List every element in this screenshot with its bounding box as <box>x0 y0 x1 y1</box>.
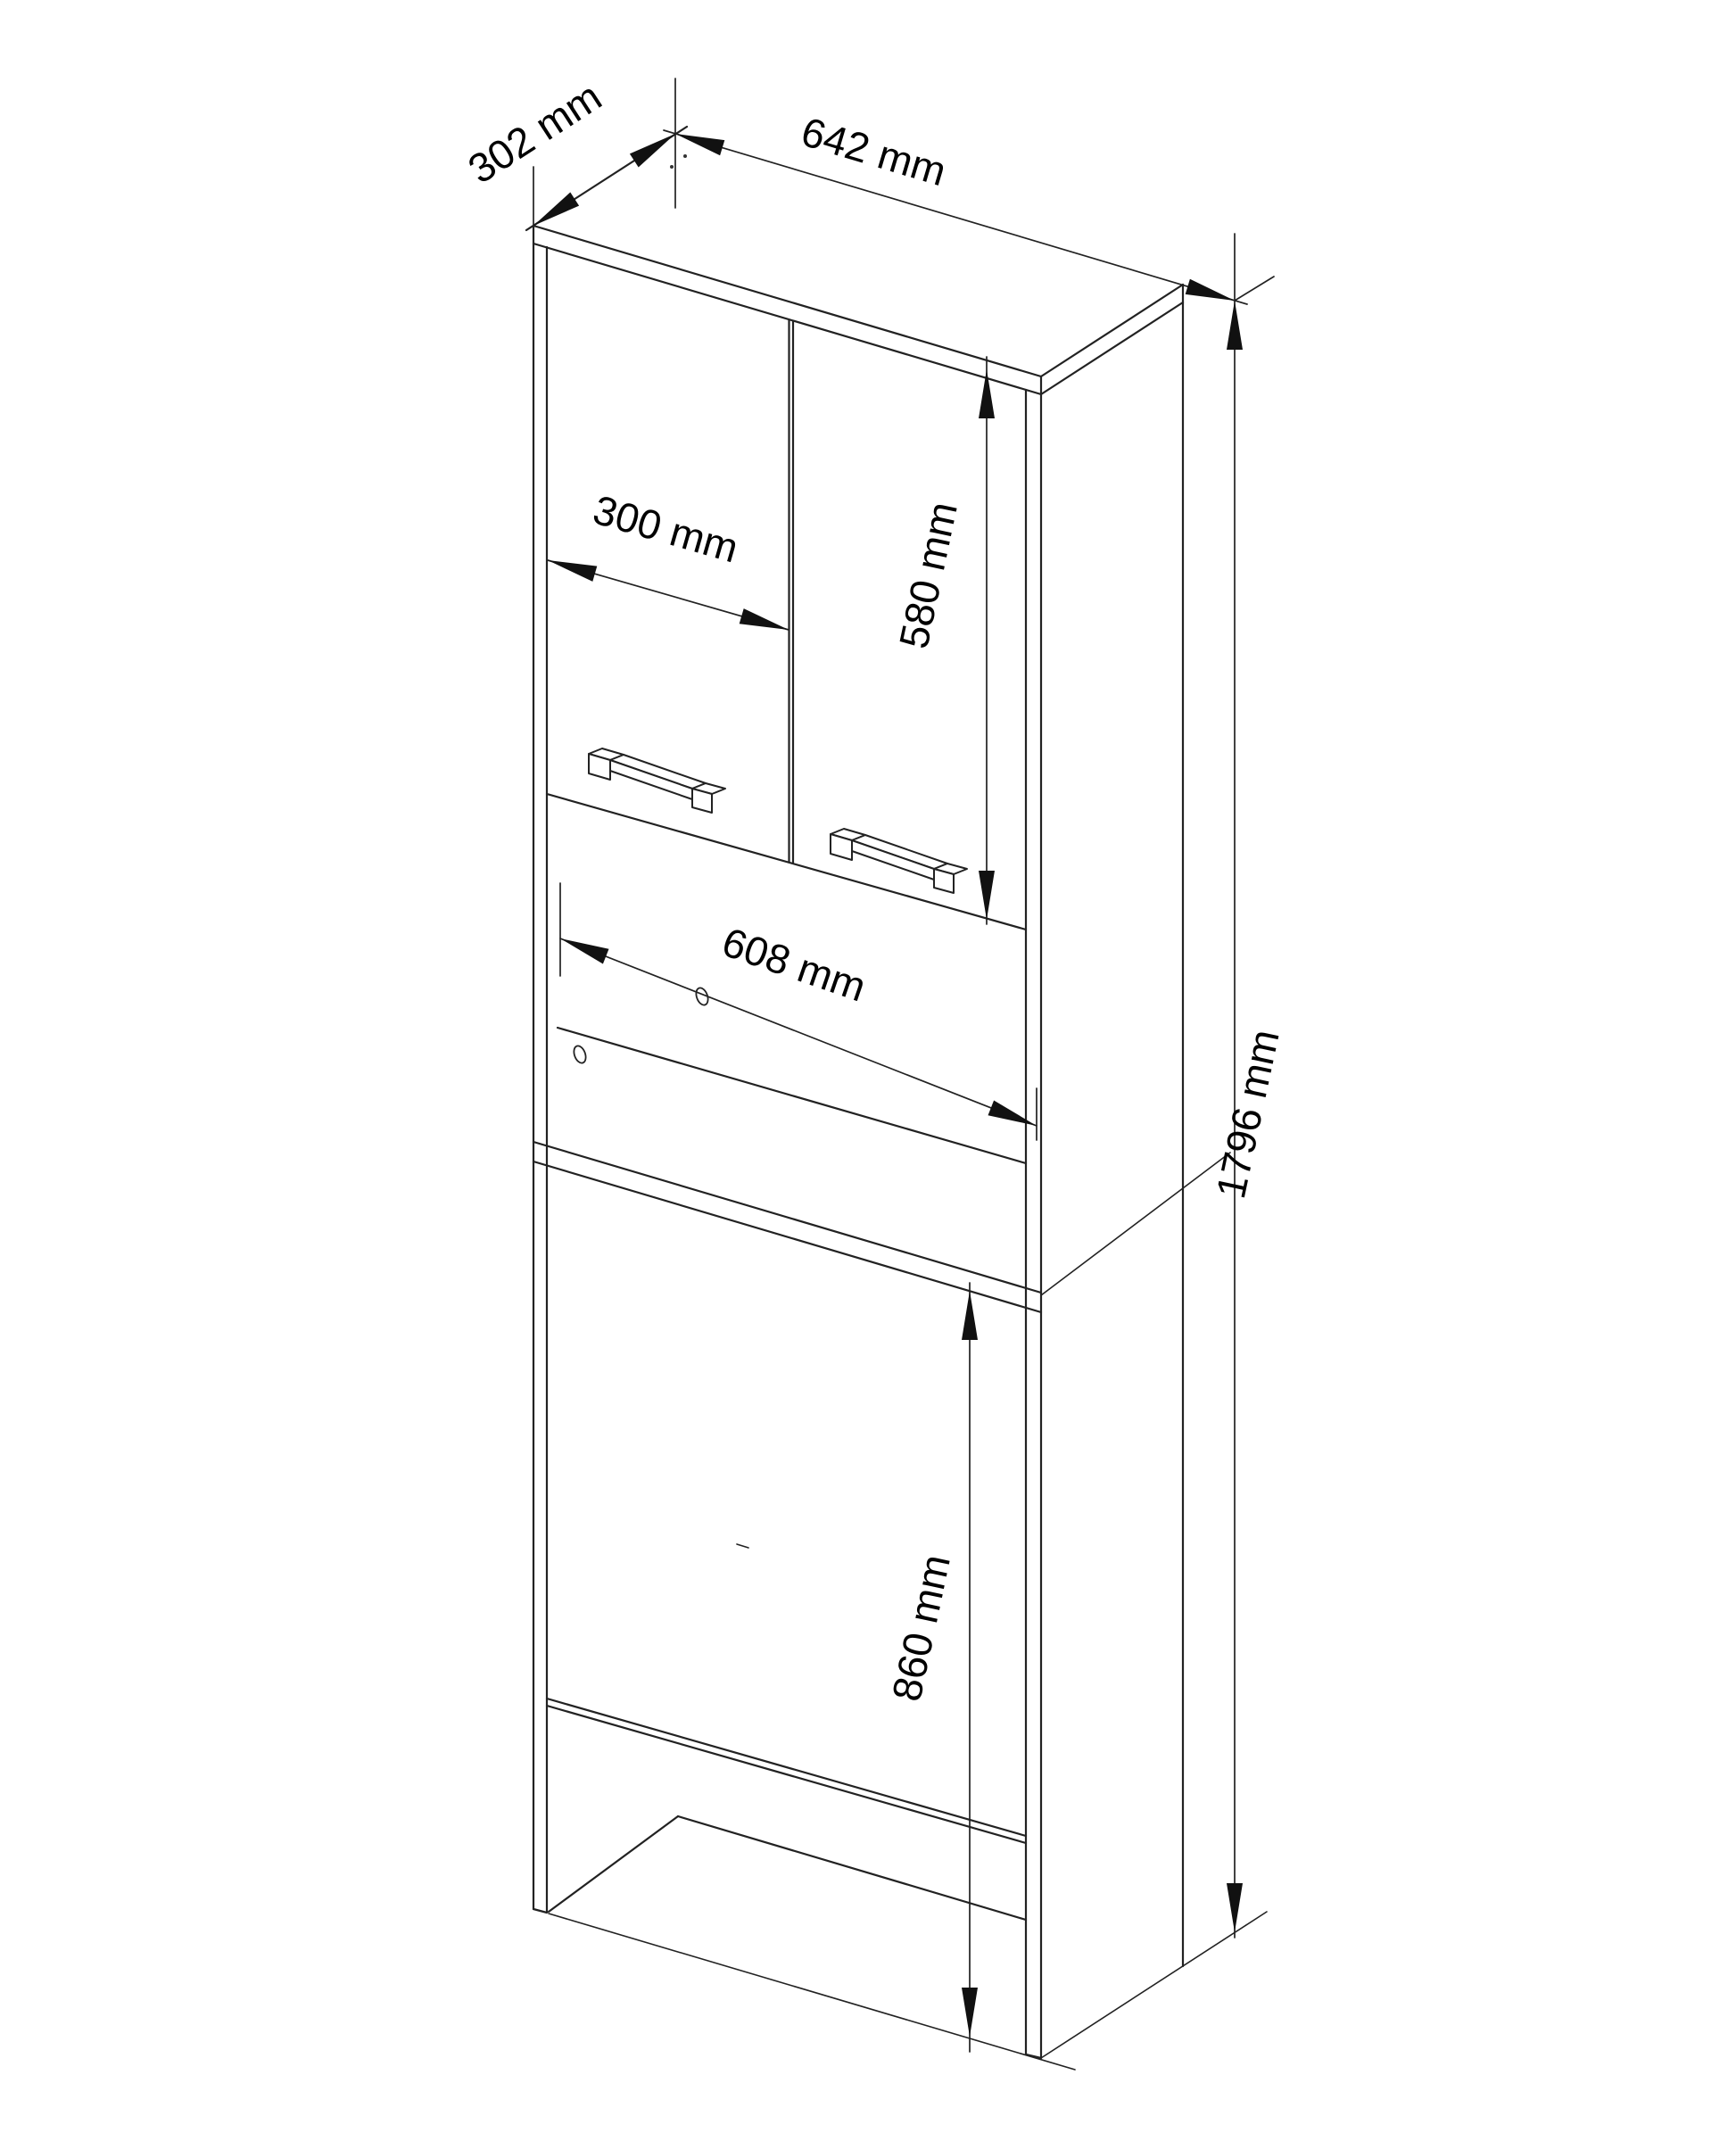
dimension-line <box>664 130 1247 304</box>
print-speck <box>670 165 674 169</box>
dimension-arrow <box>1227 301 1243 350</box>
left-panel-bottom-edge <box>533 1909 547 1913</box>
dimension-niche-width-608: 608 mm <box>560 883 1037 1140</box>
shelf-pin-hole <box>572 1045 588 1065</box>
top-panel-bottom-edge <box>533 244 1041 394</box>
niche-floor-back-edge <box>558 1028 1026 1163</box>
dimension-arrow <box>533 193 579 227</box>
dimension-label-total-height: 1796 mm <box>1207 1025 1288 1202</box>
dimension-arrow <box>962 1988 978 2037</box>
right-door-handle <box>831 829 967 893</box>
left-door-handle <box>589 748 725 813</box>
dimension-washer-opening-860: 860 mm <box>883 1283 978 2052</box>
print-speck <box>737 1544 748 1548</box>
dimension-arrow <box>630 134 675 168</box>
dimension-label-door-height: 580 mm <box>890 498 966 652</box>
dimension-arrow <box>979 871 995 920</box>
cabinet-drawing: 302 mm 642 mm 300 mm 580 mm 608 mm 1796 <box>0 0 1736 2141</box>
dimension-door-height-580: 580 mm <box>890 357 995 924</box>
plinth-top-thickness <box>547 1706 1026 1843</box>
dimension-depth-302: 302 mm <box>459 73 675 269</box>
top-panel-right-thickness <box>1041 302 1183 394</box>
dimension-arrow <box>1186 279 1235 301</box>
dimension-label-door-width: 300 mm <box>588 486 743 572</box>
floor-line <box>549 1914 1075 2070</box>
right-panel-bottom-back-edge <box>1041 1912 1267 2058</box>
mid-band-bottom-edge <box>533 1161 1041 1312</box>
print-speck <box>683 154 687 158</box>
dimension-width-642: 642 mm <box>664 108 1274 304</box>
dimension-label-width: 642 mm <box>797 108 952 194</box>
dimension-label-niche-width: 608 mm <box>716 918 872 1010</box>
top-right-depth-edge <box>1041 285 1183 376</box>
plinth-top-edge <box>547 1699 1026 1836</box>
dimension-arrow <box>548 560 597 582</box>
plinth-bottom-edge <box>678 1816 1026 1920</box>
technical-drawing-canvas: 302 mm 642 mm 300 mm 580 mm 608 mm 1796 <box>0 0 1736 2141</box>
left-panel-bottom-back-edge <box>549 1816 678 1912</box>
dimension-total-height-1796: 1796 mm <box>1207 234 1288 1938</box>
dimension-arrow <box>962 1291 978 1340</box>
dimension-arrow <box>988 1101 1037 1127</box>
dimension-label-washer-opening: 860 mm <box>883 1550 959 1705</box>
mid-band-top-edge <box>533 1142 1041 1293</box>
dimension-door-width-300: 300 mm <box>548 486 789 630</box>
doors-bottom-edge <box>547 794 1026 930</box>
top-front-edge <box>533 226 1041 376</box>
cabinet-carcass <box>526 127 1267 2070</box>
dimension-arrow <box>675 134 724 155</box>
dimension-label-depth: 302 mm <box>459 73 609 193</box>
extension-line <box>1235 277 1274 301</box>
dimension-arrow <box>1227 1883 1243 1932</box>
mid-band-back-extension <box>1041 1153 1230 1295</box>
dimension-arrow <box>560 938 609 964</box>
dimension-arrow <box>740 608 789 630</box>
